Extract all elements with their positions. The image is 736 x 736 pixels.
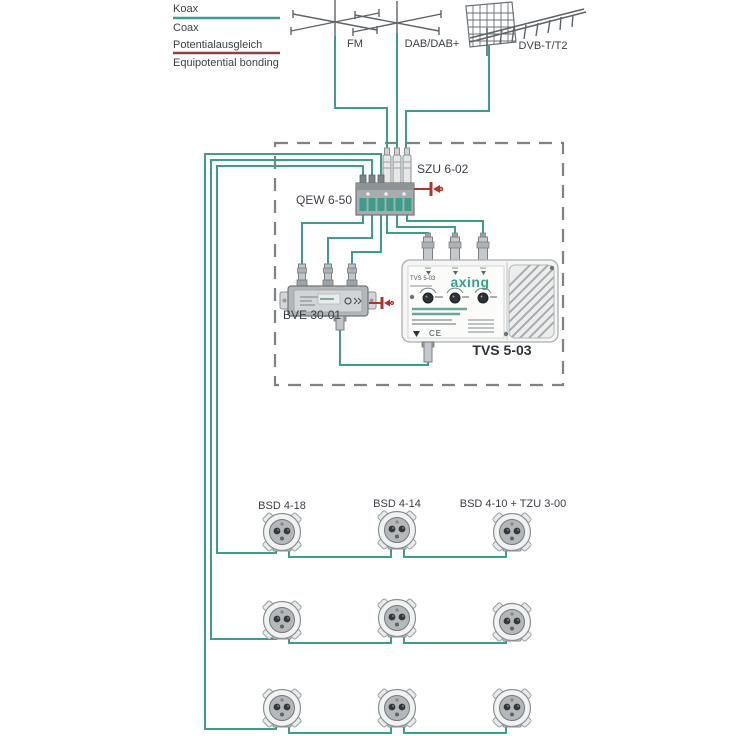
dab-antenna-label: DAB/DAB+ (392, 38, 472, 51)
fm-downlead (335, 36, 387, 156)
ce-mark: CE (429, 330, 442, 338)
dvbt-downlead (406, 45, 489, 156)
outlet-grid (262, 510, 532, 728)
wall-outlet-r1c1 (262, 512, 302, 552)
outlet-label-bsd-4-14: BSD 4-14 (352, 498, 442, 511)
legend-potentialausgleich-label: Potentialausgleich (173, 39, 262, 52)
wall-outlet-r2c3 (492, 602, 532, 642)
tvs-output-connector (424, 342, 432, 362)
fm-antenna (291, 0, 379, 37)
legend-equipotential-label: Equipotential bonding (173, 57, 279, 70)
fm-antenna-label: FM (335, 38, 375, 51)
wall-outlet-r2c2 (377, 598, 417, 638)
axing-brand-logo: axing (450, 274, 489, 290)
outlet-label-bsd-4-10-tzu: BSD 4-10 + TZU 3-00 (451, 498, 575, 511)
dab-antenna (353, 1, 441, 36)
bve-input-connectors (297, 264, 357, 287)
legend-coax-label: Coax (173, 22, 199, 35)
dvbt-antenna-label: DVB-T/T2 (503, 40, 583, 53)
qew-bonding-arrow (433, 185, 440, 193)
outlet-label-bsd-4-18: BSD 4-18 (237, 500, 327, 513)
qew-label: QEW 6-50 (296, 194, 352, 207)
trunk-row1 (217, 166, 363, 553)
wall-outlet-r1c2 (377, 510, 417, 550)
wall-outlet-r3c2 (377, 688, 417, 728)
coax-cables (205, 33, 506, 733)
wall-outlet-r3c1 (262, 688, 302, 728)
bve-bonding-arrow (384, 300, 390, 307)
wiring-diagram-svg: axing (0, 0, 736, 736)
wall-outlet-r2c1 (262, 600, 302, 640)
tvs-sticker-model: TVS 5-03 (410, 276, 435, 282)
bve-label: BVE 30-01 (283, 309, 341, 322)
wall-outlet-r3c3 (492, 688, 532, 728)
wall-outlet-r1c3 (492, 512, 532, 552)
tvs-label: TVS 5-03 (452, 344, 552, 357)
legend-koax-label: Koax (173, 3, 198, 16)
antenna-distribution-diagram: axing Koax Coax Potentialausgleich Equip… (0, 0, 736, 736)
tvs-input-connectors (422, 233, 489, 261)
szu-surge-protectors (383, 148, 411, 186)
szu-label: SZU 6-02 (417, 163, 468, 176)
trunk-row2 (211, 160, 372, 639)
